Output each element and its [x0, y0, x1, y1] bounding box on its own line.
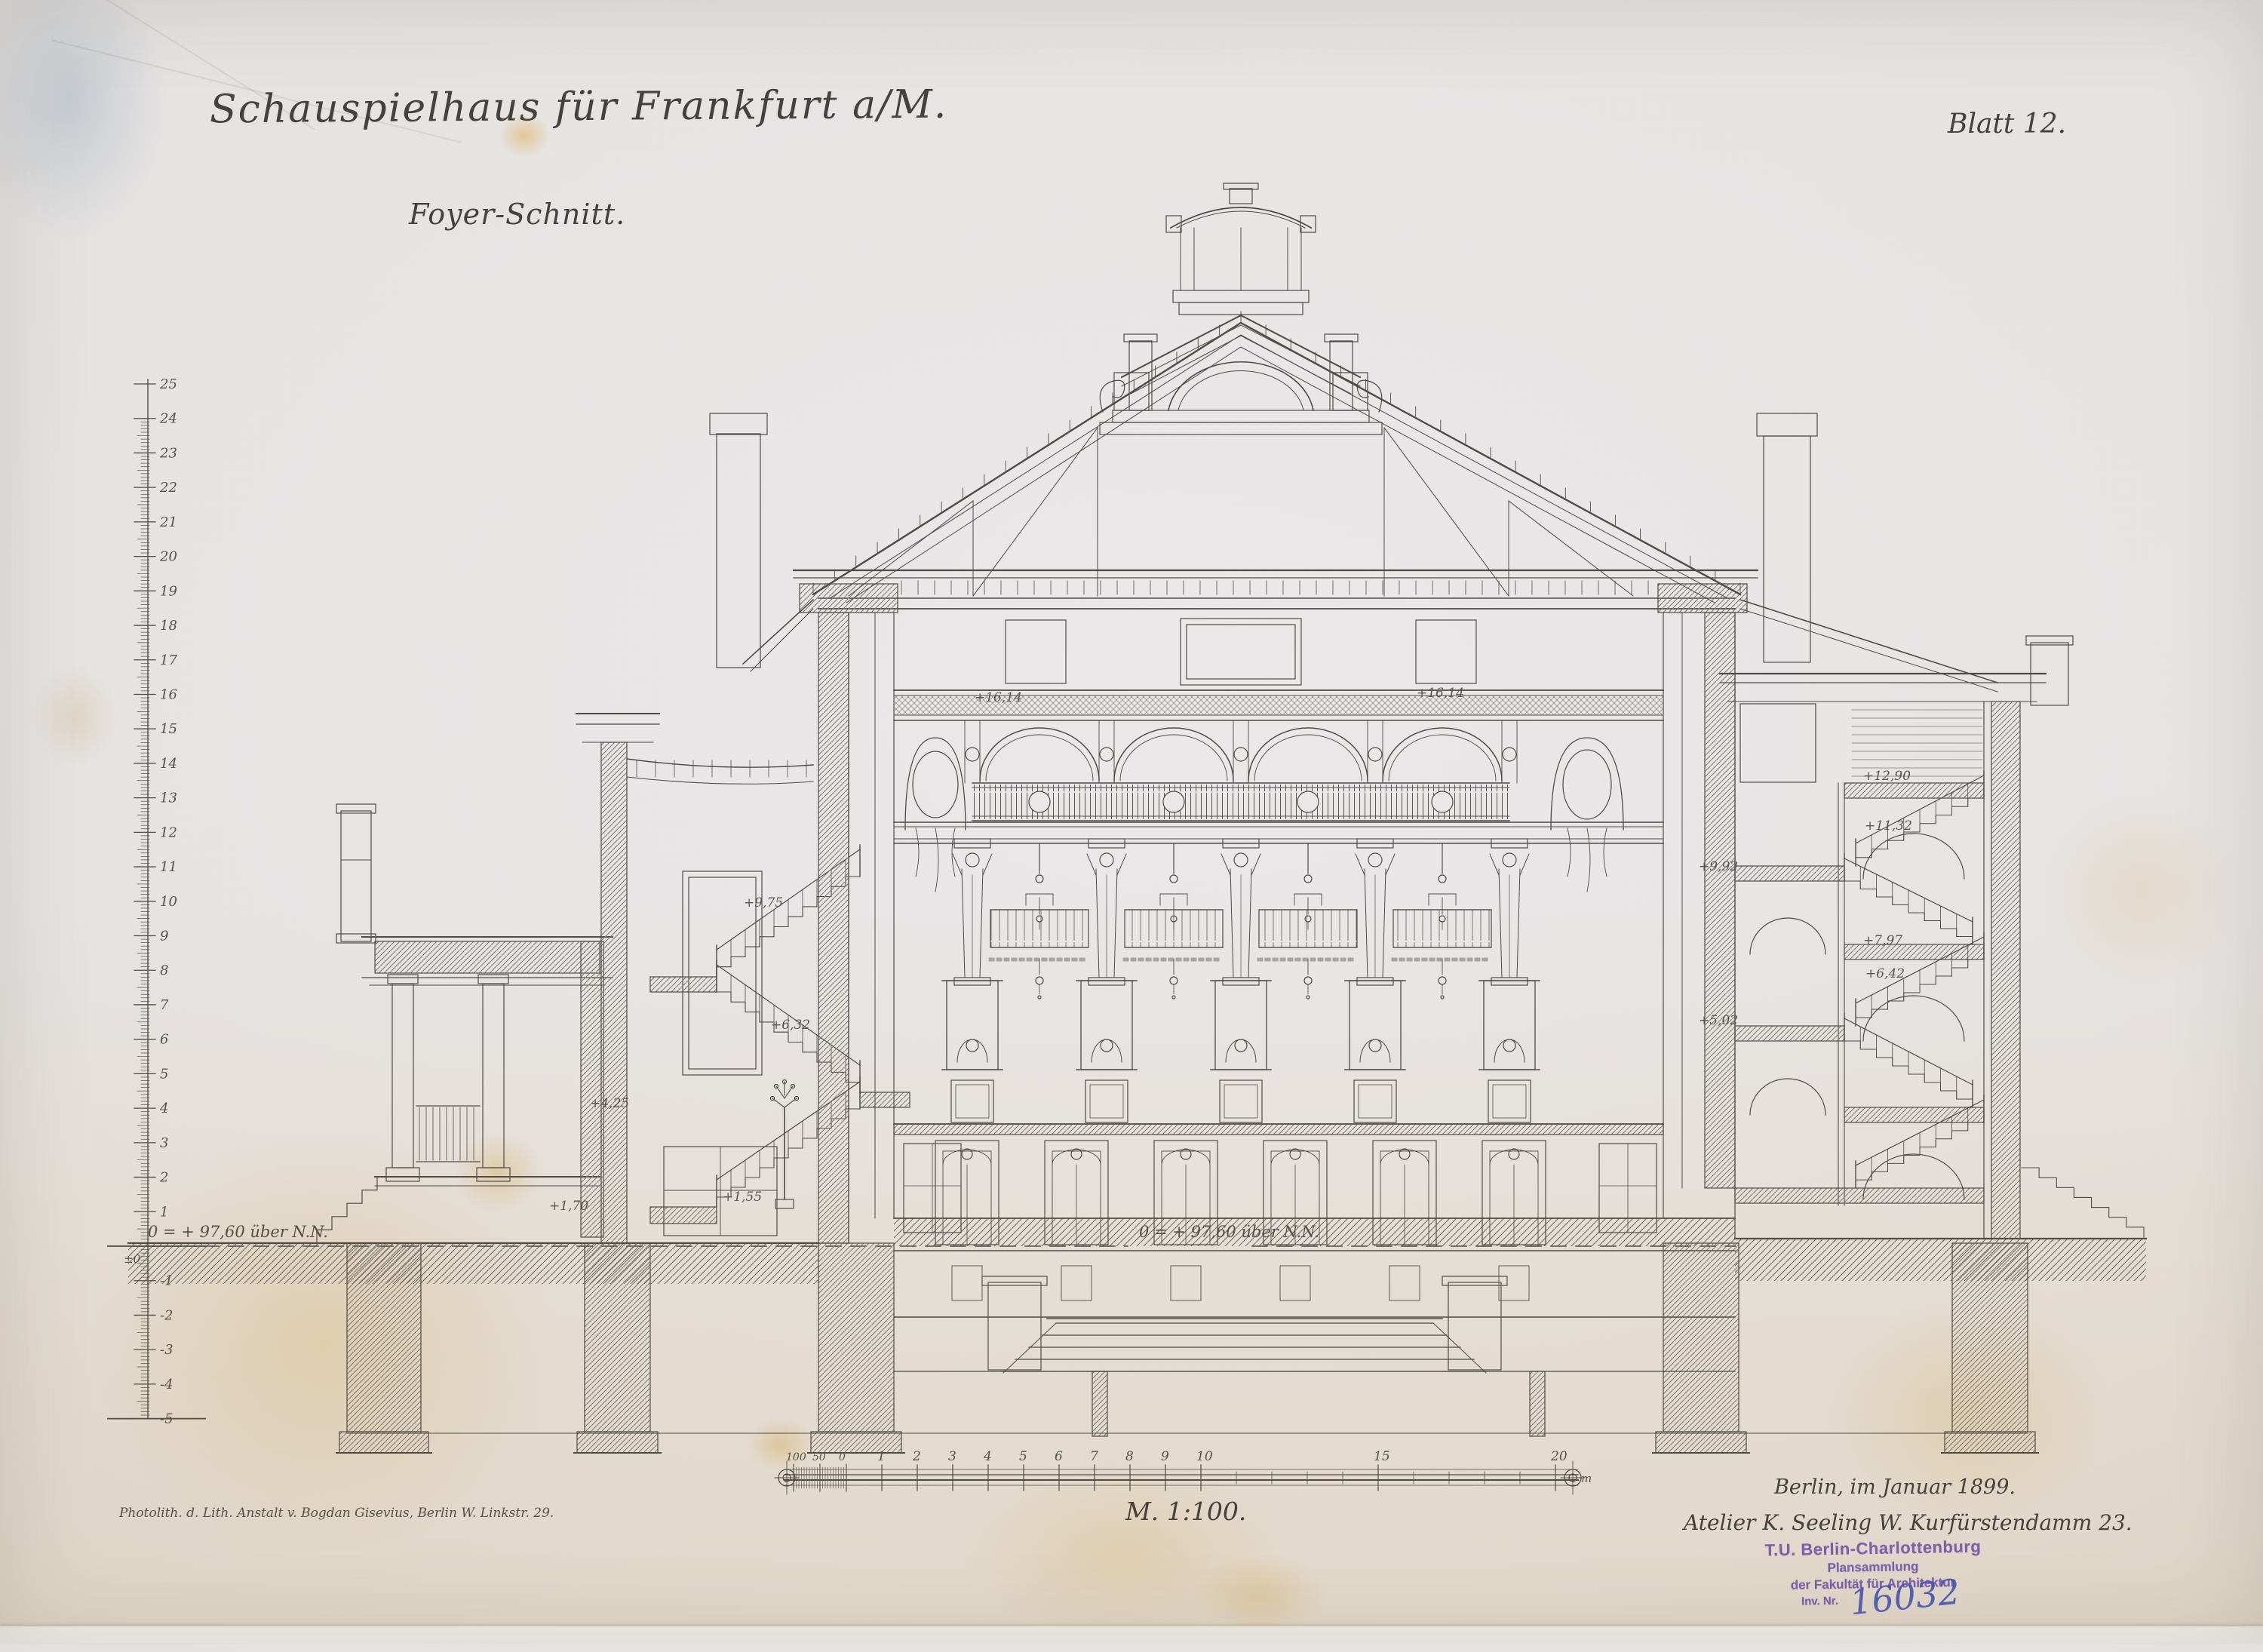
scanned-architectural-sheet: { "sheet": { "title": "Schauspielhaus fü… [0, 0, 2263, 1643]
scan-vignette [0, 0, 2263, 1643]
